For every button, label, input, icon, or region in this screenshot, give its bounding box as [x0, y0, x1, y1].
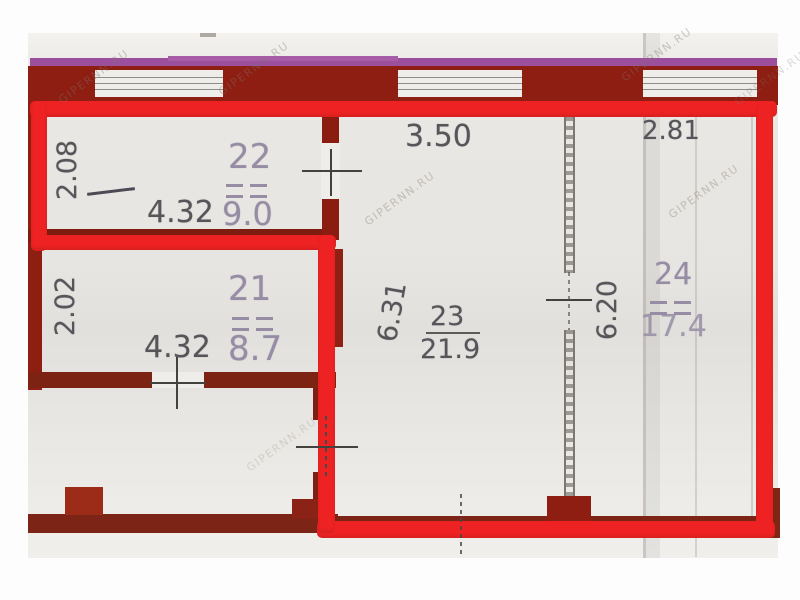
partition-between-23-24-lower [564, 330, 575, 497]
room21-depth-dim: 2.02 [50, 266, 80, 346]
highlight-bottom [317, 521, 775, 538]
paper-crease [751, 117, 753, 537]
paper-smudge [200, 33, 216, 37]
door-cross-room22-v [330, 149, 332, 196]
highlight-mid-horizontal [31, 235, 336, 250]
room21-number: 21 [228, 272, 271, 306]
door-cross-room22 [302, 170, 362, 172]
opening-mark-bottom-wall [460, 494, 462, 556]
highlight-top [30, 101, 777, 117]
room22-width-dim: 4.32 [147, 198, 214, 228]
highlight-right [756, 104, 773, 538]
room24-number: 24 [654, 260, 692, 290]
room21-area: 8.7 [228, 332, 282, 366]
room22-area: 9.0 [222, 198, 273, 230]
pillar-bottom-left [65, 487, 103, 515]
door-dashes-corridor [325, 416, 327, 478]
door-opening-room21 [152, 372, 204, 388]
room23-area: 21.9 [420, 336, 480, 363]
floor-plan: 22 9.0 4.32 2.08 21 8.7 4.32 2.02 3.50 6… [0, 0, 800, 600]
room24-width-dim: 2.81 [642, 118, 700, 144]
window-room22 [95, 70, 223, 97]
highlight-left [31, 101, 47, 251]
door-cross-corridor [296, 446, 358, 448]
room24-area: 17.4 [640, 312, 707, 342]
room22-number: 22 [228, 140, 271, 174]
room24-depth-dim: 6.20 [592, 270, 622, 350]
boundary-line-wobble [168, 56, 398, 61]
window-room23 [398, 70, 522, 97]
room21-width-dim: 4.32 [144, 333, 211, 363]
room22-depth-dim: 2.08 [52, 130, 82, 210]
door-cross-room21 [150, 382, 206, 384]
room23-width-dim: 3.50 [405, 122, 472, 152]
highlight-mid-vertical [318, 235, 335, 533]
door-dashes-partition [568, 272, 570, 330]
pillar-bottom-room23 [547, 496, 591, 523]
partition-between-23-24-upper [564, 117, 575, 273]
room23-number: 23 [430, 303, 464, 330]
